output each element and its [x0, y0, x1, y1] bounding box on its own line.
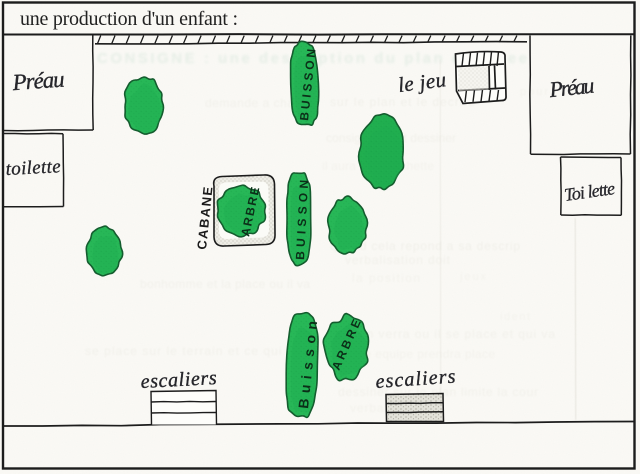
- svg-text:bonhomme et la place ou il va: bonhomme et la place ou il va: [140, 277, 310, 291]
- svg-text:sur le plan et le decrire: sur le plan et le decrire: [330, 95, 475, 109]
- svg-text:se place sur le terrain et ce: se place sur le terrain et ce qui est: [85, 344, 306, 358]
- svg-text:toilette: toilette: [5, 156, 61, 180]
- svg-text:pour: pour: [520, 86, 548, 98]
- svg-text:Préau: Préau: [11, 66, 66, 95]
- svg-text:Préau: Préau: [547, 72, 595, 102]
- svg-text:une production d'un enfant :: une production d'un enfant :: [20, 8, 238, 30]
- svg-text:escaliers: escaliers: [140, 367, 217, 393]
- svg-text:verbalisation doit: verbalisation doit: [345, 253, 451, 267]
- svg-text:la position: la position: [352, 271, 420, 285]
